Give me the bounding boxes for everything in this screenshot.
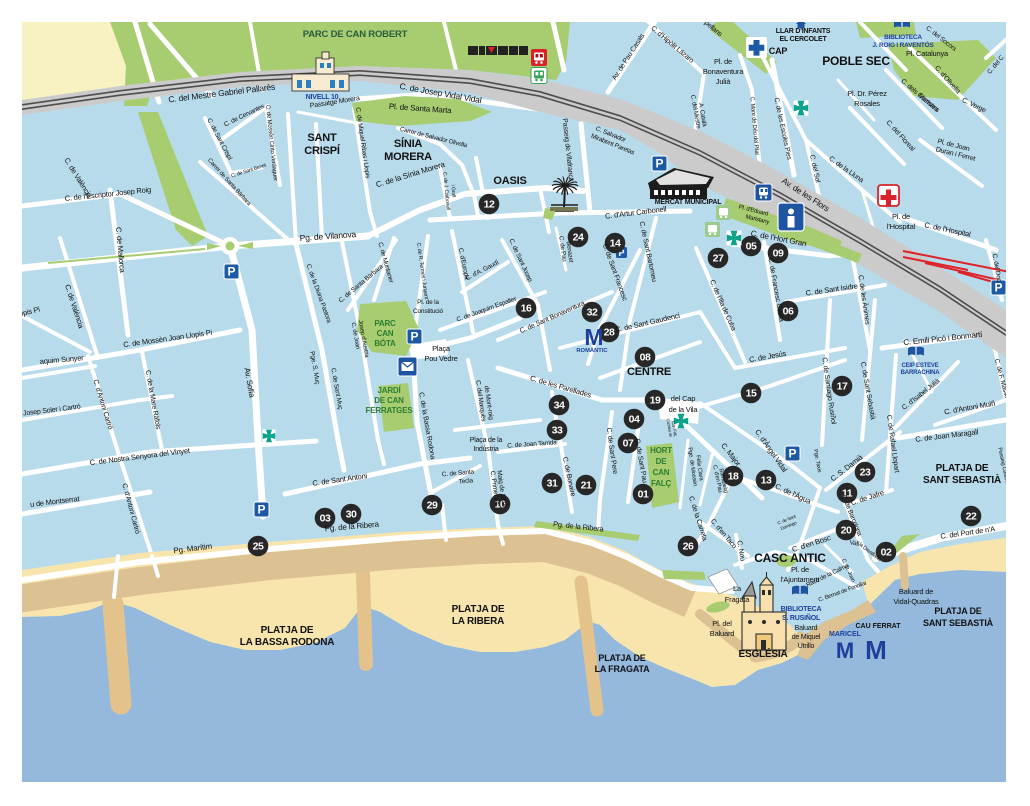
svg-text:CENTRE: CENTRE: [627, 366, 671, 378]
svg-text:SANT SEBASTIÀ: SANT SEBASTIÀ: [923, 618, 994, 628]
svg-text:MARICEL: MARICEL: [829, 631, 862, 638]
svg-text:30: 30: [346, 509, 357, 521]
svg-text:FERRATGES: FERRATGES: [366, 406, 414, 415]
svg-text:Plaça: Plaça: [432, 344, 451, 353]
svg-text:BÓTA: BÓTA: [374, 339, 396, 348]
svg-text:CAP: CAP: [769, 46, 788, 56]
svg-text:17: 17: [837, 381, 848, 393]
svg-text:29: 29: [427, 500, 438, 512]
svg-text:Julià: Julià: [716, 77, 731, 86]
svg-text:Pl. Dr. Pérez: Pl. Dr. Pérez: [847, 89, 887, 98]
svg-text:SÍNIA: SÍNIA: [394, 137, 423, 150]
svg-text:LA RIBERA: LA RIBERA: [452, 616, 504, 627]
svg-text:24: 24: [573, 232, 584, 244]
svg-text:Fragata: Fragata: [725, 595, 750, 604]
svg-text:BIBLIOTECA: BIBLIOTECA: [781, 606, 822, 613]
svg-text:03: 03: [320, 513, 331, 525]
svg-text:LA FRAGATA: LA FRAGATA: [595, 664, 651, 674]
svg-text:33: 33: [552, 425, 563, 437]
svg-text:NIVELL 10: NIVELL 10: [306, 94, 339, 101]
svg-text:FALÇ: FALÇ: [651, 479, 672, 488]
svg-text:PLATJA DE: PLATJA DE: [934, 606, 981, 616]
svg-text:04: 04: [629, 414, 640, 426]
svg-text:PARC: PARC: [374, 319, 396, 328]
svg-text:DE: DE: [656, 457, 668, 466]
svg-text:34: 34: [554, 400, 565, 412]
svg-text:Utrillo: Utrillo: [798, 643, 815, 650]
svg-text:Bonaventura: Bonaventura: [703, 67, 744, 76]
svg-text:EL CERCOLET: EL CERCOLET: [779, 36, 827, 43]
svg-text:27: 27: [713, 253, 724, 265]
svg-text:13: 13: [761, 475, 772, 487]
svg-text:La: La: [733, 584, 742, 593]
svg-text:01: 01: [638, 489, 649, 501]
svg-text:32: 32: [587, 307, 598, 319]
svg-text:LA BASSA RODONA: LA BASSA RODONA: [240, 637, 335, 648]
svg-text:Baluard de: Baluard de: [899, 587, 933, 596]
svg-text:CAU FERRAT: CAU FERRAT: [856, 623, 902, 630]
svg-text:de la Vila: de la Vila: [669, 405, 699, 414]
svg-text:de Miquel: de Miquel: [792, 634, 821, 641]
svg-text:BARRACHINA: BARRACHINA: [901, 370, 941, 376]
svg-text:P: P: [655, 157, 663, 171]
svg-text:P: P: [227, 265, 235, 279]
svg-text:Pl. del: Pl. del: [712, 619, 732, 628]
svg-text:P: P: [994, 281, 1002, 295]
svg-text:Rosales: Rosales: [854, 99, 880, 108]
svg-text:del Cap: del Cap: [671, 394, 695, 403]
svg-text:CASC ANTIC: CASC ANTIC: [754, 551, 826, 565]
svg-text:18: 18: [728, 471, 739, 483]
svg-text:21: 21: [581, 480, 592, 492]
svg-text:M: M: [865, 635, 887, 665]
svg-text:DE CAN: DE CAN: [374, 396, 404, 405]
svg-text:S. RUSIÑOL: S. RUSIÑOL: [782, 613, 821, 622]
svg-text:19: 19: [650, 395, 661, 407]
svg-text:OASIS: OASIS: [493, 175, 526, 187]
svg-text:15: 15: [746, 388, 757, 400]
svg-text:J. ROIG I RAVENTÓS: J. ROIG I RAVENTÓS: [872, 40, 934, 49]
svg-text:Plaça de la: Plaça de la: [470, 437, 503, 444]
svg-text:07: 07: [623, 438, 634, 450]
svg-text:POBLE SEC: POBLE SEC: [822, 54, 890, 68]
svg-text:Indústria: Indústria: [473, 446, 498, 453]
svg-text:ROMÀNTIC: ROMÀNTIC: [576, 347, 608, 354]
svg-text:20: 20: [841, 525, 852, 537]
svg-text:Pl. de: Pl. de: [714, 57, 732, 66]
svg-text:14: 14: [610, 238, 621, 250]
svg-text:26: 26: [683, 541, 694, 553]
svg-text:12: 12: [484, 199, 495, 211]
svg-text:JARDÍ: JARDÍ: [377, 386, 401, 395]
svg-text:i Gralt: i Gralt: [449, 184, 456, 198]
svg-text:08: 08: [640, 352, 651, 364]
svg-text:HORT: HORT: [650, 446, 672, 455]
svg-text:16: 16: [521, 303, 532, 315]
svg-text:LLAR D'INFANTS: LLAR D'INFANTS: [776, 28, 831, 35]
svg-text:05: 05: [746, 241, 757, 253]
svg-text:PARC DE CAN ROBERT: PARC DE CAN ROBERT: [303, 29, 408, 40]
svg-text:PLATJA DE: PLATJA DE: [936, 463, 989, 474]
svg-text:22: 22: [966, 511, 977, 523]
svg-text:Pl. Catalunya: Pl. Catalunya: [906, 49, 949, 58]
svg-text:M: M: [836, 638, 854, 663]
svg-text:Baluard: Baluard: [710, 629, 734, 638]
svg-text:MORERA: MORERA: [384, 151, 432, 163]
svg-text:Tecla: Tecla: [458, 477, 473, 485]
svg-text:P: P: [257, 503, 265, 517]
svg-text:31: 31: [547, 478, 558, 490]
svg-text:MERCAT MUNICIPAL: MERCAT MUNICIPAL: [655, 199, 722, 206]
svg-text:Pou Vedre: Pou Vedre: [424, 354, 457, 363]
svg-text:BIBLIOTECA: BIBLIOTECA: [884, 34, 922, 41]
svg-text:28: 28: [604, 327, 615, 339]
svg-text:l'Hospital: l'Hospital: [887, 222, 916, 231]
svg-text:PLATJA DE: PLATJA DE: [598, 653, 645, 663]
svg-text:CAN: CAN: [377, 329, 394, 338]
svg-text:SANT SEBASTIÀ: SANT SEBASTIÀ: [923, 473, 1001, 486]
svg-text:CRISPÍ: CRISPÍ: [304, 144, 341, 157]
svg-text:P: P: [788, 447, 796, 461]
svg-text:Pl. de la: Pl. de la: [417, 299, 439, 306]
svg-text:CAN: CAN: [653, 468, 670, 477]
svg-text:SANT: SANT: [307, 132, 337, 144]
svg-text:02: 02: [881, 547, 892, 559]
svg-text:CEIP ESTEVE: CEIP ESTEVE: [901, 363, 938, 369]
svg-text:l'Ajuntament: l'Ajuntament: [781, 575, 821, 584]
svg-text:23: 23: [860, 467, 871, 479]
svg-text:M: M: [584, 324, 603, 350]
svg-text:PLATJA DE: PLATJA DE: [452, 604, 505, 615]
svg-text:Constitució: Constitució: [413, 308, 444, 315]
svg-text:PLATJA DE: PLATJA DE: [261, 625, 314, 636]
svg-text:Baluard: Baluard: [795, 625, 818, 632]
svg-text:25: 25: [253, 541, 264, 553]
svg-text:Pl. de: Pl. de: [791, 565, 809, 574]
svg-text:Pl. de: Pl. de: [892, 212, 910, 221]
svg-text:Vidal-Quadras: Vidal-Quadras: [893, 597, 939, 606]
svg-text:P: P: [410, 330, 418, 344]
svg-text:ESGLÉSIA: ESGLÉSIA: [739, 647, 788, 660]
